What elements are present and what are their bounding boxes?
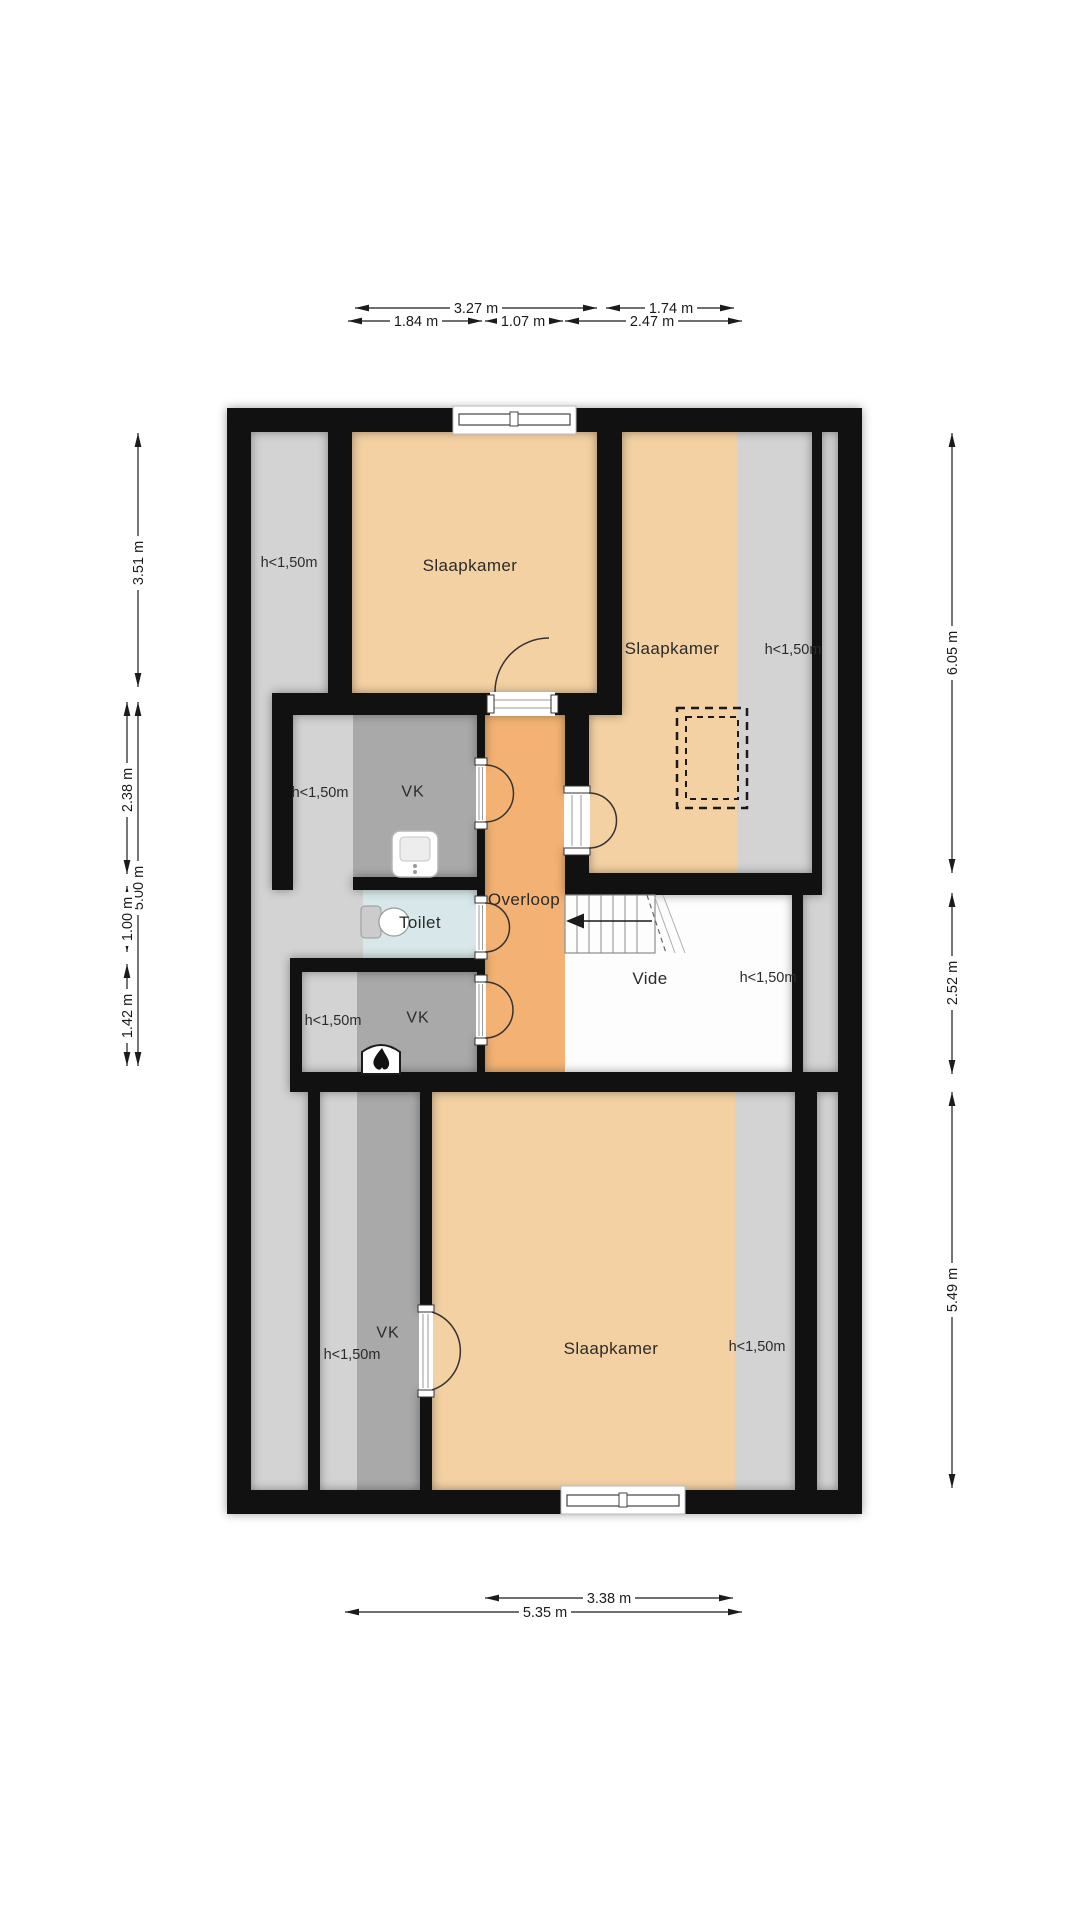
wall-vk-upper-left xyxy=(272,715,293,890)
dim-left-3-51: 3.51 m xyxy=(131,541,147,585)
room-label-overloop: Overloop xyxy=(488,890,560,909)
wall-between-bedrooms xyxy=(597,432,622,693)
sink-icon xyxy=(392,831,438,877)
window-icon xyxy=(561,1486,685,1514)
room-label-vk-bottom: VK xyxy=(376,1325,399,1342)
wall-slaapkamer-top-left xyxy=(328,432,352,715)
dim-right-2-52: 2.52 m xyxy=(945,961,961,1005)
window-icon xyxy=(453,406,576,434)
low-height-label-vide: h<1,50m xyxy=(740,970,797,986)
dim-left-2-38: 2.38 m xyxy=(120,768,136,812)
room-label-slaapkamer-top: Slaapkamer xyxy=(423,556,518,575)
dim-left-1-00: 1.00 m xyxy=(120,897,136,941)
low-height-label-bottom-left: h<1,50m xyxy=(324,1347,381,1363)
wall-toilet-bottom xyxy=(290,958,485,972)
dim-top-3: 1.84 m xyxy=(394,314,438,330)
room-label-slaapkamer-right: Slaapkamer xyxy=(625,639,720,658)
room-slaapkamer-right-lower xyxy=(589,693,737,875)
room-slaapkamer-bottom xyxy=(432,1092,735,1490)
low-height-label-right-upper: h<1,50m xyxy=(765,642,822,658)
room-label-vk-upper: VK xyxy=(401,784,424,801)
room-label-slaapkamer-bottom: Slaapkamer xyxy=(564,1339,659,1358)
wall-hall-left-b xyxy=(477,822,485,903)
wall-hall-right-a xyxy=(565,715,589,793)
fireplace-icon xyxy=(362,1045,400,1074)
dim-top-5: 2.47 m xyxy=(630,314,674,330)
outer-wall-left xyxy=(227,408,251,1514)
dim-left-1-42: 1.42 m xyxy=(120,994,136,1038)
room-label-toilet: Toilet xyxy=(399,913,441,932)
wall-vk-upper-bottom xyxy=(353,877,477,890)
wall-bottom-left-divider xyxy=(308,1092,320,1490)
room-vk-bottom xyxy=(357,1092,420,1490)
dim-bottom-1: 3.38 m xyxy=(587,1591,631,1607)
outer-wall-bottom xyxy=(227,1490,862,1514)
dim-top-4: 1.07 m xyxy=(501,314,545,330)
wall-vk-upper-top xyxy=(272,693,485,715)
room-label-vk-lower: VK xyxy=(406,1010,429,1027)
dim-top-1: 3.27 m xyxy=(454,301,498,317)
wall-vk-lower-left xyxy=(290,972,302,1072)
room-overloop xyxy=(485,693,565,1072)
wall-slaapkamer-right-bottom xyxy=(565,873,822,895)
wall-vk-bottom-right-b xyxy=(420,1390,432,1490)
wall-vk-bottom-right-a xyxy=(420,1092,432,1312)
low-height-label-top-left: h<1,50m xyxy=(261,555,318,571)
wall-junction-hall-top xyxy=(565,693,622,715)
low-height-label-vk-lower: h<1,50m xyxy=(305,1013,362,1029)
wall-eaves-lower xyxy=(795,1092,817,1490)
low-height-label-bottom-right: h<1,50m xyxy=(729,1339,786,1355)
dim-bottom-2: 5.35 m xyxy=(523,1605,567,1621)
dim-right-5-49: 5.49 m xyxy=(945,1268,961,1312)
low-height-label-vk-upper: h<1,50m xyxy=(292,785,349,801)
floor-plan-page: { "plan_type": "floor-plan", "rooms": { … xyxy=(0,0,1080,1920)
floor-plan: Slaapkamer Slaapkamer Slaapkamer Overloo… xyxy=(0,0,1080,1920)
outer-wall-right xyxy=(838,408,862,1514)
dim-right-6-05: 6.05 m xyxy=(945,631,961,675)
room-label-vide: Vide xyxy=(632,969,667,988)
